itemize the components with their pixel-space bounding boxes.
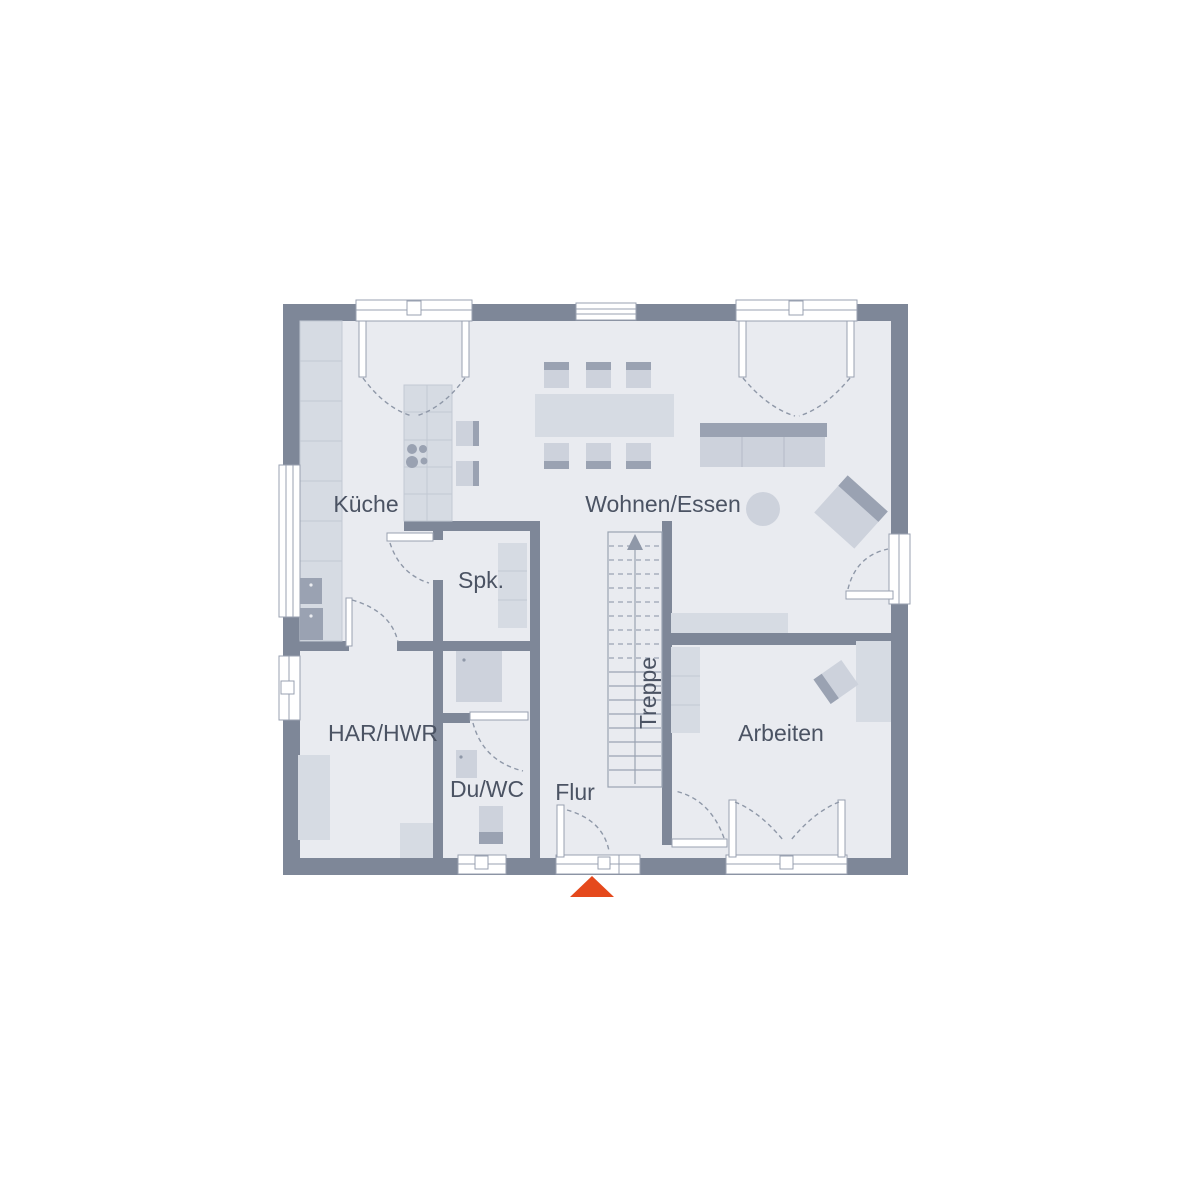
sofa [700, 423, 827, 467]
toilet [479, 806, 503, 844]
room-label-office: Arbeiten [738, 720, 824, 746]
storage-unit [400, 823, 433, 858]
room-label-pantry: Spk. [458, 567, 504, 593]
office-shelf [671, 647, 700, 733]
window-bath [458, 855, 506, 874]
floorplan-drawing: Küche Wohnen/Essen Spk. HAR/HWR Du/WC Fl… [0, 0, 1200, 1200]
shower [456, 651, 502, 702]
entrance-marker-icon [570, 876, 614, 897]
window-kitchen [279, 465, 300, 617]
coffee-table [746, 492, 780, 526]
dining-chairs-bottom [544, 443, 651, 469]
room-label-living: Wohnen/Essen [585, 491, 741, 517]
kitchen-appliance [300, 578, 322, 604]
bar-stool [456, 421, 479, 446]
floorplan-canvas: Küche Wohnen/Essen Spk. HAR/HWR Du/WC Fl… [0, 0, 1200, 1200]
room-label-utility: HAR/HWR [328, 720, 438, 746]
sideboard [671, 613, 788, 633]
kitchen-appliance [300, 608, 323, 640]
room-label-kitchen: Küche [333, 491, 398, 517]
desk [856, 641, 891, 722]
window-utility [279, 656, 300, 720]
kitchen-counter [300, 321, 342, 641]
bar-stool [456, 461, 479, 486]
room-label-bath: Du/WC [450, 776, 524, 802]
sink [456, 750, 477, 778]
room-label-hall: Flur [555, 779, 595, 805]
kitchen-island [404, 385, 452, 521]
dining-chairs-top [544, 362, 651, 388]
dining-table [535, 394, 674, 437]
window-top [576, 303, 636, 320]
room-label-stairs: Treppe [635, 657, 661, 729]
storage-unit [298, 755, 330, 840]
